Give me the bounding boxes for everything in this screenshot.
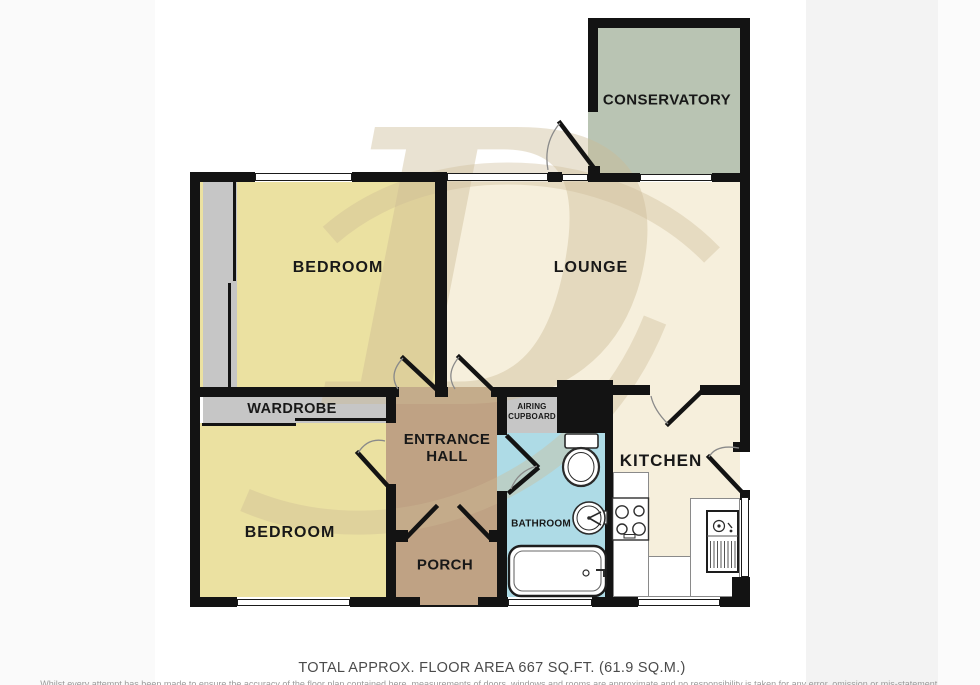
wall	[605, 433, 613, 597]
wall	[700, 385, 740, 395]
wall	[190, 597, 237, 607]
kitchen-counter-left	[613, 472, 649, 597]
wall	[350, 597, 420, 607]
label-conservatory: CONSERVATORY	[603, 92, 731, 109]
chimney-block	[557, 380, 613, 433]
sliding-door-panel	[233, 182, 236, 281]
label-entrance-hall-line1: ENTRANCE	[404, 431, 491, 448]
wall	[592, 597, 638, 607]
porch-threshold	[420, 597, 478, 607]
window	[255, 173, 352, 181]
wall	[386, 484, 396, 607]
sliding-door-panel	[295, 418, 388, 421]
window	[237, 599, 350, 606]
wall	[720, 597, 750, 607]
wall	[613, 385, 650, 395]
label-airing-line2: CUPBOARD	[508, 412, 556, 422]
label-kitchen: KITCHEN	[620, 451, 703, 471]
window	[741, 497, 749, 577]
wall	[190, 172, 200, 607]
label-entrance-hall-line2: HALL	[404, 448, 491, 465]
window	[447, 173, 548, 181]
wall	[200, 387, 399, 397]
edge-band-right	[806, 0, 938, 685]
wall	[740, 182, 750, 442]
window	[508, 599, 592, 606]
sliding-door-panel	[228, 283, 231, 387]
wall	[712, 173, 750, 182]
wall	[588, 18, 750, 28]
wall	[435, 182, 447, 387]
door-pivot-block	[435, 387, 448, 397]
label-airing-cupboard: AIRING CUPBOARD	[508, 402, 556, 422]
window	[638, 599, 720, 606]
edge-band-far-right	[938, 0, 980, 685]
kitchen-counter-bottom	[648, 556, 691, 597]
wall	[588, 18, 598, 112]
wall	[548, 172, 562, 182]
label-wardrobe: WARDROBE	[247, 401, 336, 417]
label-airing-line1: AIRING	[508, 402, 556, 412]
wall	[497, 491, 507, 607]
door-pivot-block	[396, 530, 408, 542]
wall	[740, 18, 750, 182]
room-fill-bathroom	[497, 433, 605, 597]
room-fill-bedroom-2	[200, 423, 386, 597]
wall	[507, 387, 557, 397]
edge-band-left	[0, 0, 155, 685]
floorplan: D	[0, 0, 980, 685]
label-entrance-hall: ENTRANCE HALL	[404, 431, 491, 465]
wall	[588, 173, 640, 182]
door-pivot-block	[491, 387, 507, 397]
footer-disclaimer: Whilst every attempt has been made to en…	[40, 679, 939, 685]
room-fill-lounge	[447, 182, 740, 388]
label-bedroom-2: BEDROOM	[245, 524, 336, 542]
door-pivot-block	[489, 530, 501, 542]
wall	[352, 172, 447, 182]
room-fill-entrance-hall-porch	[386, 387, 497, 607]
door-arc-conservatory	[547, 123, 560, 170]
label-bathroom: BATHROOM	[511, 519, 571, 530]
sliding-door-panel	[202, 423, 296, 426]
label-lounge: LOUNGE	[554, 259, 628, 277]
label-bedroom-1: BEDROOM	[293, 259, 384, 277]
door-pivot-block	[733, 442, 750, 452]
window	[562, 174, 588, 181]
wall	[497, 397, 507, 435]
window	[640, 174, 712, 181]
footer-area-text: TOTAL APPROX. FLOOR AREA 667 SQ.FT. (61.…	[298, 660, 685, 676]
door-opening	[741, 452, 750, 490]
label-porch: PORCH	[417, 557, 473, 574]
